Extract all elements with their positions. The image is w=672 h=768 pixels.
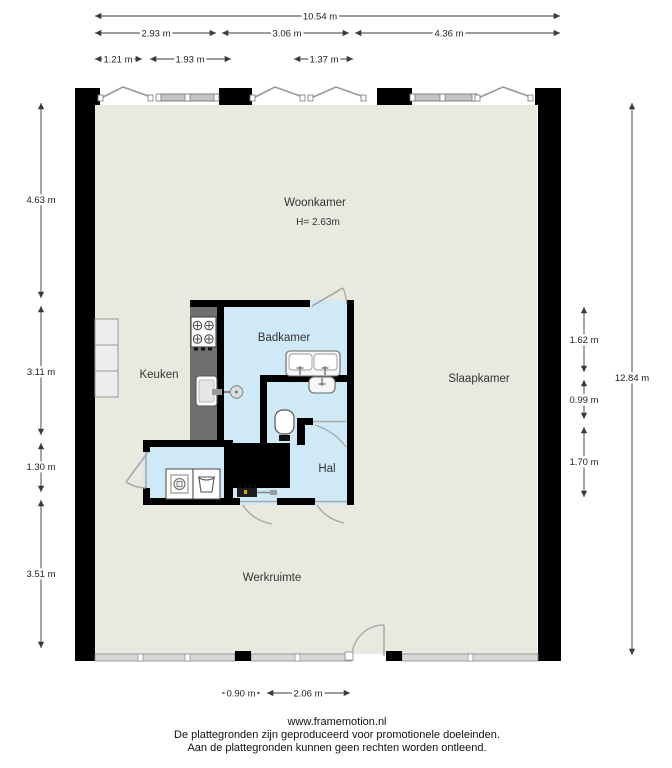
dim-top-1: 2.93 m — [141, 29, 170, 40]
dim-window-3: 1.37 m — [309, 55, 338, 66]
hal-stub-wall-h — [297, 418, 313, 425]
kitchen-cabinet-icon — [95, 319, 118, 397]
footer-website: www.framemotion.nl — [286, 716, 386, 728]
right-wall — [538, 88, 561, 661]
glass-divider — [138, 654, 143, 661]
room-label-werkruimte: Werkruimte — [243, 572, 302, 584]
core-bottom-wall-b — [277, 498, 315, 505]
casement-window-icon — [101, 87, 151, 98]
top-wall-pier-1 — [219, 88, 252, 105]
dim-top-total: 10.54 m — [303, 12, 337, 23]
dim-left-4: 3.51 m — [26, 569, 55, 580]
washing-machine-icon — [166, 469, 193, 499]
dim-window-2: 1.93 m — [175, 55, 204, 66]
dim-left-1: 4.63 m — [26, 195, 55, 206]
casement-window-icon — [311, 87, 364, 98]
footer-disclaimer-1: De plattegronden zijn geproduceerd voor … — [174, 729, 500, 741]
top-wall-corner-right — [535, 88, 561, 105]
core-bottom-wall-c — [347, 498, 354, 505]
top-wall-corner-left — [75, 88, 100, 105]
room-label-keuken: Keuken — [139, 369, 178, 381]
glass-divider — [295, 654, 300, 661]
top-windows — [98, 87, 533, 101]
bottom-wall-pier-2 — [386, 651, 402, 661]
footer-disclaimer-2: Aan de plattegronden kunnen geen rechten… — [187, 742, 486, 754]
dim-right-total: 12.84 m — [615, 373, 649, 384]
room-label-woonkamer: Woonkamer — [284, 197, 346, 209]
casement-window-icon — [253, 87, 303, 98]
dim-bottom-1: 0.90 m — [226, 689, 255, 700]
dim-window-1: 1.21 m — [103, 55, 132, 66]
top-wall-pier-2 — [377, 88, 412, 105]
glass-divider — [468, 654, 473, 661]
bottom-glass-wall-2 — [251, 654, 352, 661]
dim-right-3: 1.70 m — [569, 457, 598, 468]
double-washbasin-icon — [286, 351, 340, 376]
dim-top-2: 3.06 m — [272, 29, 301, 40]
floor-plan-svg: Woonkamer H= 2.63m Keuken Badkamer Slaap… — [0, 0, 672, 768]
glass-divider — [185, 654, 190, 661]
casement-window-icon — [478, 87, 531, 98]
room-label-badkamer: Badkamer — [258, 332, 311, 344]
ceiling-height-label: H= 2.63m — [296, 217, 340, 228]
left-wall — [75, 88, 95, 661]
laundry-basket-icon — [193, 469, 220, 499]
laundry-left-wall-a — [143, 440, 150, 452]
dim-left-2: 3.11 m — [27, 367, 55, 378]
shaft — [224, 443, 290, 488]
bottom-glass-wall-1 — [95, 654, 235, 661]
bathroom-divider-wall-v — [260, 375, 267, 445]
laundry-top-wall — [143, 440, 233, 447]
core-right-wall — [347, 300, 354, 505]
dim-left-3: 1.30 m — [26, 462, 55, 473]
dim-bottom-2: 2.06 m — [293, 689, 322, 700]
dim-right-1: 1.62 m — [569, 335, 598, 346]
dim-right-2: 0.99 m — [569, 395, 598, 406]
washbasin-icon — [309, 377, 335, 393]
room-label-hal: Hal — [318, 463, 335, 475]
counter-back-wall — [217, 300, 224, 443]
stove-icon — [191, 317, 216, 351]
bottom-wall-pier-1 — [235, 651, 251, 661]
dim-top-3: 4.36 m — [434, 29, 463, 40]
faucet-icon — [212, 389, 222, 395]
footer: www.framemotion.nl De plattegronden zijn… — [174, 716, 500, 754]
core-top-wall — [190, 300, 310, 307]
room-label-slaapkamer: Slaapkamer — [448, 373, 510, 385]
floor-plan-page: Woonkamer H= 2.63m Keuken Badkamer Slaap… — [0, 0, 672, 768]
